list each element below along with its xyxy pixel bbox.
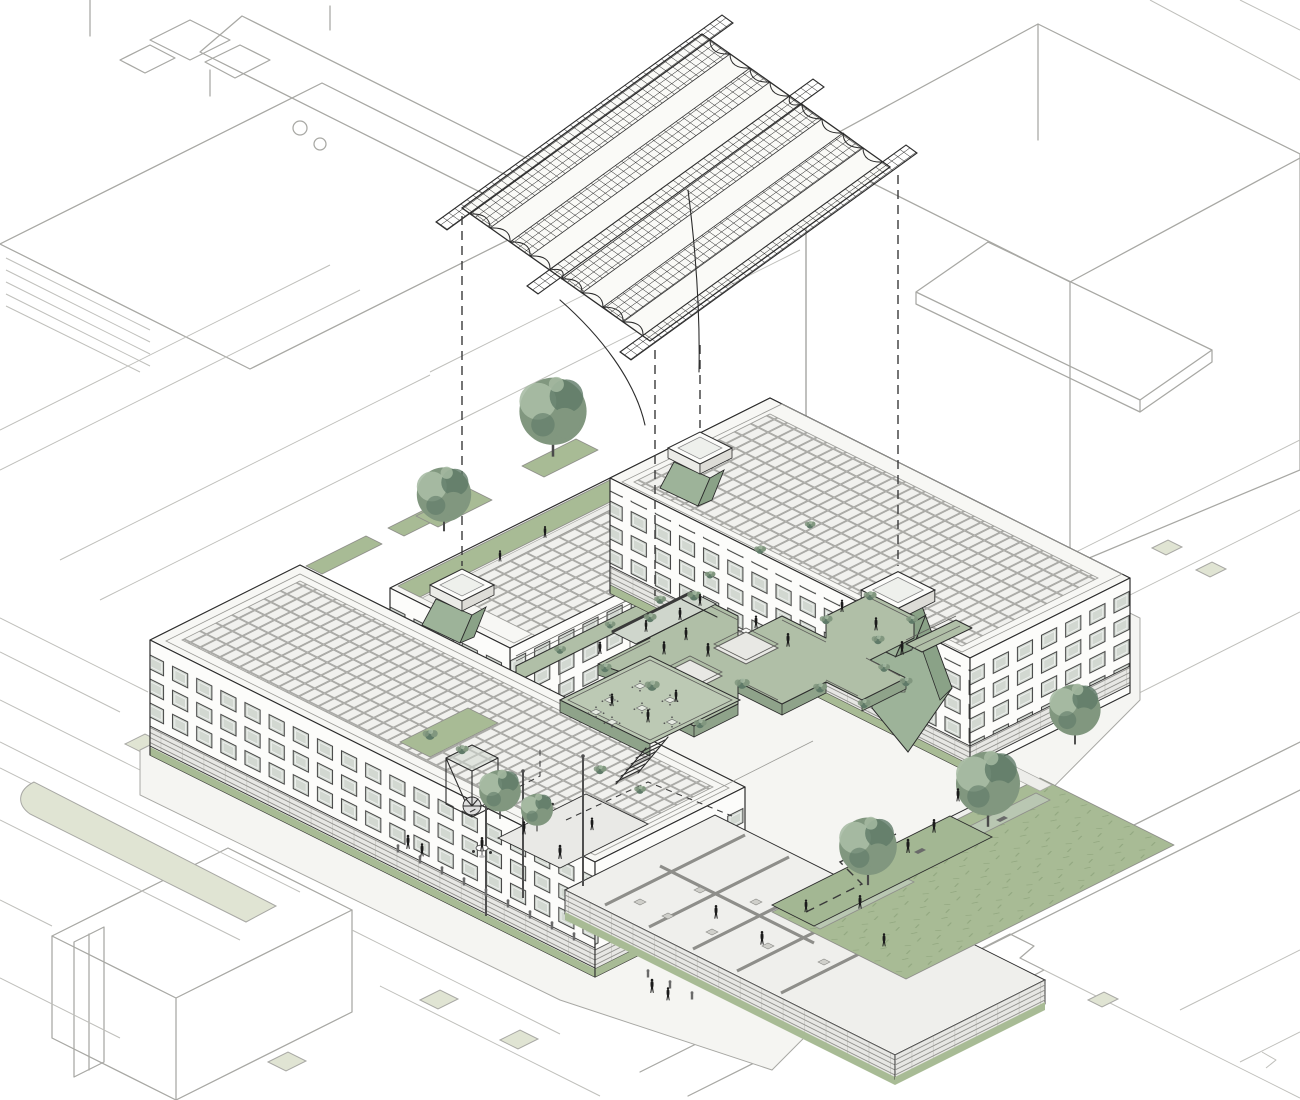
- roof-green-strip: [306, 536, 382, 574]
- architectural-drawing: Axonometric architectural diagram — U-sh…: [0, 0, 1300, 1100]
- spiral-stair: [463, 797, 481, 815]
- axonometric-scene: Axonometric architectural diagram — U-sh…: [0, 0, 1300, 1100]
